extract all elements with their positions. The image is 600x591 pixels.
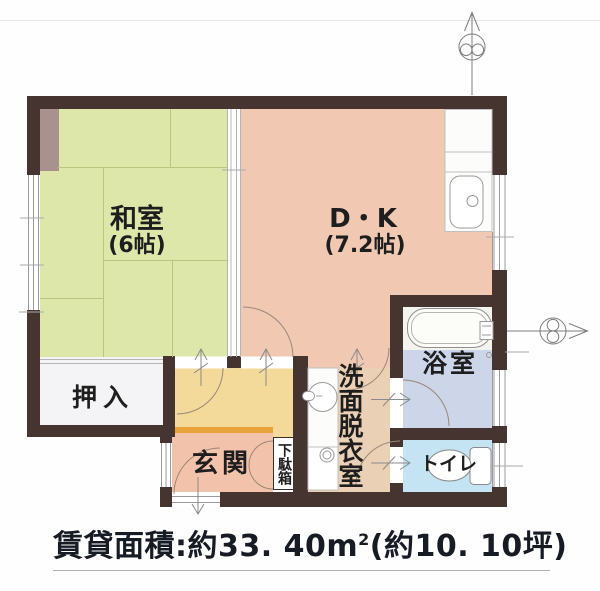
room-label-toire: トイレ: [420, 455, 476, 475]
area-value-m2: 約33. 40: [188, 529, 327, 564]
wall-toilet-left-lower: [390, 483, 403, 492]
room-label-genkan: 玄関: [179, 451, 265, 478]
area-unit-exponent: 2: [358, 530, 370, 549]
wall-oshiire-right: [163, 356, 175, 437]
area-value-tsubo: (約10. 10坪): [370, 529, 568, 564]
fusuma-track: [227, 109, 241, 357]
wall-bath-top: [390, 295, 507, 307]
area-unit: m: [326, 529, 358, 564]
section-marker-right-icon: [507, 318, 588, 344]
floor-plan-image: 和室 (6帖) D・K (7.2帖) 押入 玄関 下駄箱 洗面脱衣室 浴室 トイ…: [0, 0, 600, 591]
room-label-yokushitsu: 浴室: [418, 351, 482, 377]
wall-senmen-left: [293, 356, 308, 492]
hallway-floor: [175, 368, 297, 427]
room-size-washitsu: (6帖): [94, 234, 180, 257]
wall-genkan-left: [160, 437, 172, 492]
room-size-dk: (7.2帖): [315, 234, 415, 257]
wall-hallway-top-piece: [227, 356, 241, 368]
rental-area-text: 賃貸面積:約33. 40m2(約10. 10坪): [53, 521, 550, 571]
room-label-washitsu: 和室: [94, 206, 180, 234]
opening-washitsu-hall: [175, 357, 227, 369]
wall-top: [27, 96, 507, 109]
room-label-getabako: 下駄箱: [277, 443, 291, 485]
wall-toilet-left-upper: [390, 440, 403, 447]
room-label-oshiire: 押入: [63, 385, 143, 411]
tokonoma-pillar: [40, 109, 59, 171]
wall-bottom: [160, 492, 507, 507]
scan-artifact-line: [0, 20, 600, 21]
bath-door-opening: [390, 378, 403, 428]
wall-bath-toilet-divider: [390, 428, 507, 440]
toilet-door-opening: [390, 447, 403, 483]
wall-left: [27, 96, 40, 437]
section-marker-top-icon: [459, 13, 485, 96]
room-label-dk: D・K: [318, 206, 408, 233]
room-bath-floor-upper: [403, 307, 492, 350]
area-label: 賃貸面積:: [53, 529, 188, 564]
wall-bath-left: [390, 307, 403, 378]
room-label-senmen: 洗面脱衣室: [337, 363, 362, 488]
wall-oshiire-bottom: [27, 425, 175, 437]
